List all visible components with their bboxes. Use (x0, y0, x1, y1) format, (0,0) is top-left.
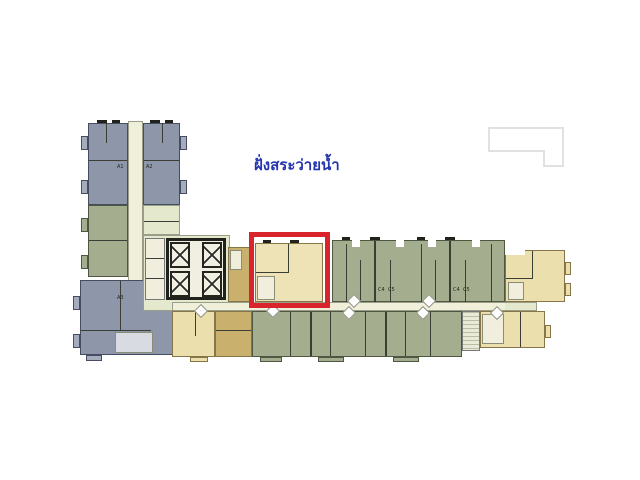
elevator-shaft-icon (202, 271, 222, 297)
roof-mark (342, 237, 350, 240)
wall-line (146, 278, 164, 279)
wall-line (520, 312, 521, 347)
wall-line (195, 312, 196, 336)
key-plan-outline-icon (487, 126, 567, 171)
unit-label: C5 (463, 288, 470, 293)
balcony-tab (81, 255, 88, 269)
wall-line (360, 260, 361, 302)
unit-label: A2 (146, 165, 153, 170)
balcony-tab (545, 325, 551, 338)
wall-line (506, 278, 533, 279)
highlight-rectangle (249, 232, 330, 308)
facade-notch (396, 240, 404, 247)
wall-line (491, 244, 492, 302)
wall-line (449, 241, 451, 302)
balcony-tab (81, 218, 88, 232)
elevator-shaft-icon (170, 271, 190, 297)
wall-line (405, 312, 406, 356)
bathroom (482, 314, 504, 344)
balcony-tab (190, 357, 208, 362)
bathroom (115, 332, 153, 353)
wall-line (120, 281, 121, 331)
wall-line (365, 312, 366, 356)
unit-label: C4 (453, 288, 460, 293)
wall-line (435, 260, 436, 302)
balcony-tab (81, 136, 88, 150)
unit-block-tan (215, 311, 252, 357)
roof-mark (445, 237, 455, 240)
balcony-tab (393, 357, 419, 362)
balcony-tab (73, 296, 80, 310)
wall-line (106, 123, 107, 143)
balcony-tab (260, 357, 282, 362)
unit-label: A1 (117, 165, 124, 170)
balcony-tab (565, 262, 571, 275)
wall-line (330, 312, 331, 356)
elevator-shaft-icon (170, 242, 190, 268)
facade-notch (428, 240, 436, 247)
unit-label: C4 (378, 288, 385, 293)
wall-line (430, 312, 431, 356)
unit-block-yellow (172, 311, 215, 357)
facade-notch (352, 240, 360, 247)
balcony-tab (180, 180, 187, 194)
facade-notch (505, 250, 525, 255)
balcony-tab (86, 355, 102, 361)
wall-line (374, 241, 376, 302)
wall-line (310, 312, 312, 356)
roof-mark (370, 237, 380, 240)
pool-side-label: ฝั่งสระว่ายน้ำ (254, 153, 340, 177)
wall-line (421, 244, 422, 302)
wall-line (146, 258, 164, 259)
elevator-shaft-icon (202, 242, 222, 268)
balcony-tab (565, 283, 571, 296)
balcony-tab (180, 136, 187, 150)
bathroom (508, 282, 524, 300)
corridor-tint (505, 303, 536, 310)
service-rooms (145, 238, 165, 300)
bathroom (230, 250, 242, 270)
wall-line (144, 160, 179, 161)
balcony-tab (318, 357, 344, 362)
wall-line (144, 221, 179, 222)
wall-line (89, 160, 127, 161)
balcony-tab (81, 180, 88, 194)
wall-line (390, 260, 391, 302)
wall-line (385, 312, 387, 356)
wall-line (89, 240, 127, 241)
stair-icon (462, 311, 480, 351)
wall-line (346, 244, 347, 302)
wall-line (162, 123, 163, 143)
wall-line (465, 260, 466, 302)
wall-line (290, 312, 291, 356)
balcony-tab (73, 334, 80, 348)
roof-mark (417, 237, 425, 240)
service-room (143, 205, 180, 235)
unit-block-green-row (332, 240, 505, 302)
facade-notch (472, 240, 480, 247)
unit-block-green (88, 205, 128, 277)
wall-line (532, 251, 533, 278)
wall-line (216, 330, 251, 331)
unit-label: C5 (388, 288, 395, 293)
wall-line (81, 330, 151, 331)
unit-label: A3 (117, 296, 124, 301)
floor-plan-image: ฝั่งสระว่ายน้ำ A1 A2 A3 (0, 0, 640, 480)
